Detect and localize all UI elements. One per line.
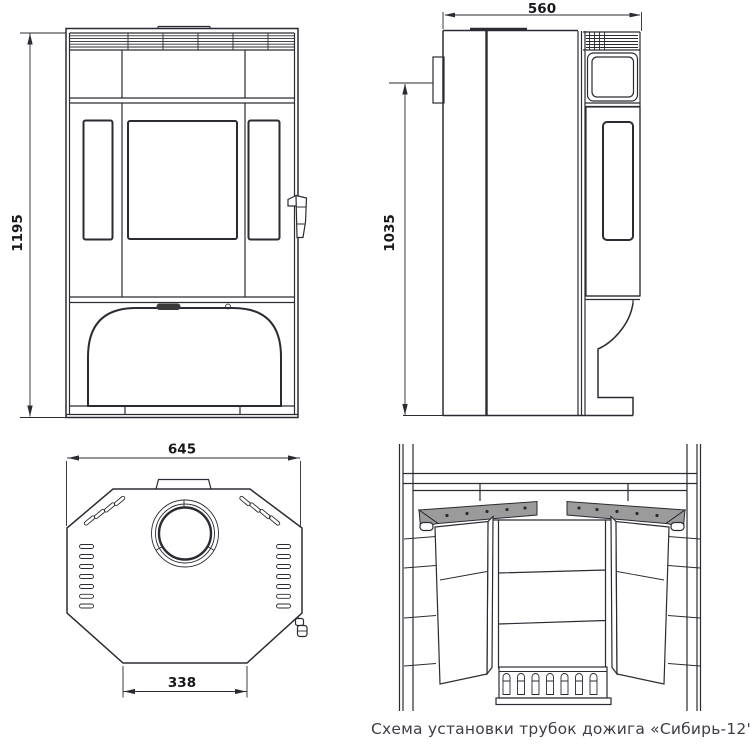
dimension-side-depth: 560 xyxy=(443,1,642,31)
side-window xyxy=(603,122,633,240)
side-view: 560 1035 xyxy=(382,1,642,416)
main-panel-dividers xyxy=(70,103,295,303)
arrowhead-right xyxy=(288,455,299,460)
dim-label-1195: 1195 xyxy=(10,214,26,252)
dimension-side-height: 1035 xyxy=(382,83,443,416)
flue-outlet xyxy=(152,500,219,567)
grate-base xyxy=(496,698,611,705)
rear-tab xyxy=(156,480,211,490)
side-vents-right xyxy=(277,545,291,609)
dimension-front-height: 1195 xyxy=(10,33,66,418)
door-handle xyxy=(288,196,307,238)
dimension-top-width: 645 xyxy=(67,442,301,527)
arrowhead-left xyxy=(444,13,455,18)
arrowhead-up xyxy=(402,84,407,95)
fuel-door-window xyxy=(128,121,237,239)
arrowhead-left xyxy=(68,455,79,460)
upper-panel-row xyxy=(70,50,295,103)
dimension-lines xyxy=(20,33,66,418)
panel-bottom-edge xyxy=(585,296,640,303)
technical-drawing-sheet: 1195 560 1035 xyxy=(0,0,750,750)
firebox-view xyxy=(400,444,701,711)
dim-label-560: 560 xyxy=(528,1,556,17)
side-grille-slats xyxy=(586,36,638,48)
corner-vents-right xyxy=(239,496,280,526)
corner-vents-left xyxy=(84,496,126,526)
front-foot-profile xyxy=(598,303,633,416)
dimension-lines xyxy=(67,458,301,526)
dimension-top-door-width: 338 xyxy=(123,666,247,698)
drawing-caption: Схема установки трубок дожига «Сибирь-12… xyxy=(371,720,750,738)
stove-drawing-svg: 1195 560 1035 xyxy=(0,0,750,750)
back-wall-bricks xyxy=(493,520,611,669)
ash-door-handle-slot xyxy=(157,304,181,311)
side-top-panel xyxy=(588,53,638,101)
right-side-window xyxy=(249,121,280,240)
top-grille xyxy=(70,33,295,50)
body-inner-edges xyxy=(70,27,295,415)
dim-label-645: 645 xyxy=(168,442,196,458)
grate xyxy=(496,667,611,705)
firebrick-panel-left xyxy=(435,517,493,685)
dim-label-1035: 1035 xyxy=(382,214,398,252)
arrowhead-right xyxy=(630,13,641,18)
arrowhead-up xyxy=(27,34,32,45)
arrowhead-down xyxy=(27,406,32,417)
ash-door xyxy=(88,304,281,407)
arrowhead-right xyxy=(235,689,246,694)
arrowhead-down xyxy=(402,404,407,415)
side-vents-left xyxy=(80,545,94,609)
side-body-outline xyxy=(443,31,633,416)
firebox-top-band xyxy=(403,474,697,502)
corner-piece-left xyxy=(420,523,433,531)
octagon-body xyxy=(67,489,302,663)
front-face-lines xyxy=(578,31,585,416)
dim-label-338: 338 xyxy=(168,675,196,691)
left-side-window xyxy=(84,121,113,240)
front-view: 1195 xyxy=(10,27,307,418)
side-top-panel-inner xyxy=(592,57,634,97)
handle-lever xyxy=(296,196,307,238)
plinth-band xyxy=(66,406,298,415)
top-view-handle xyxy=(296,617,308,637)
arrowhead-left xyxy=(124,689,135,694)
ash-door-outline xyxy=(88,308,281,406)
corner-piece-right xyxy=(671,523,684,531)
stove-body-outline xyxy=(66,29,298,418)
top-view: 645 338 xyxy=(67,442,308,698)
panel-division xyxy=(585,103,640,107)
grille-slats xyxy=(70,36,294,47)
side-tall-panel xyxy=(586,107,640,296)
firebrick-panel-right xyxy=(611,517,669,685)
